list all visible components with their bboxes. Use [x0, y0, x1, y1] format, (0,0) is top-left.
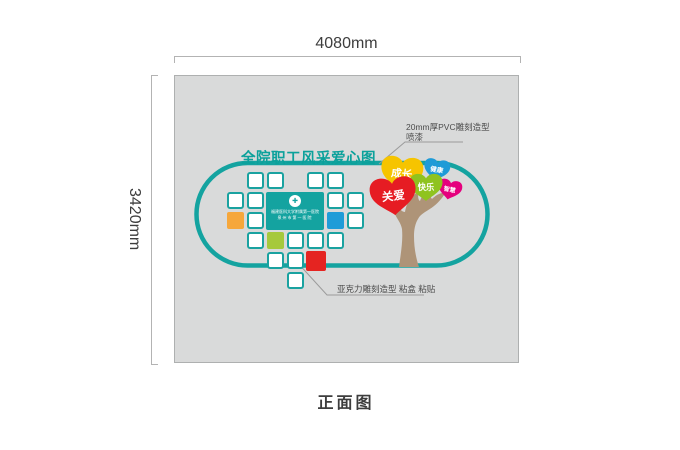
wall-panel — [174, 75, 519, 363]
height-dimension-label: 3420mm — [124, 75, 144, 363]
hospital-badge: ✚ 福建医科大学附属第一医院 泉州市第一医院 — [266, 192, 324, 230]
elevation-drawing: 4080mm 3420mm 健康智慧成长快乐关爱 ✚ 福建医科大学附属第一医院 … — [0, 0, 680, 450]
pvc-annotation: 20mm厚PVC雕刻造型 喷漆 — [406, 123, 490, 142]
hospital-name-line2: 泉州市第一医院 — [278, 215, 313, 220]
wall-title: 全院职工风采爱心图 — [241, 147, 376, 168]
view-caption: 正面图 — [271, 389, 421, 413]
acrylic-annotation: 亚克力雕刻造型 粘盒 粘贴 — [337, 285, 435, 295]
pvc-annotation-line2: 喷漆 — [406, 133, 490, 143]
height-dimension-bracket — [151, 75, 158, 365]
hospital-logo-icon: ✚ — [289, 195, 301, 207]
width-dimension-bracket — [174, 56, 521, 63]
width-dimension-label: 4080mm — [174, 35, 519, 53]
